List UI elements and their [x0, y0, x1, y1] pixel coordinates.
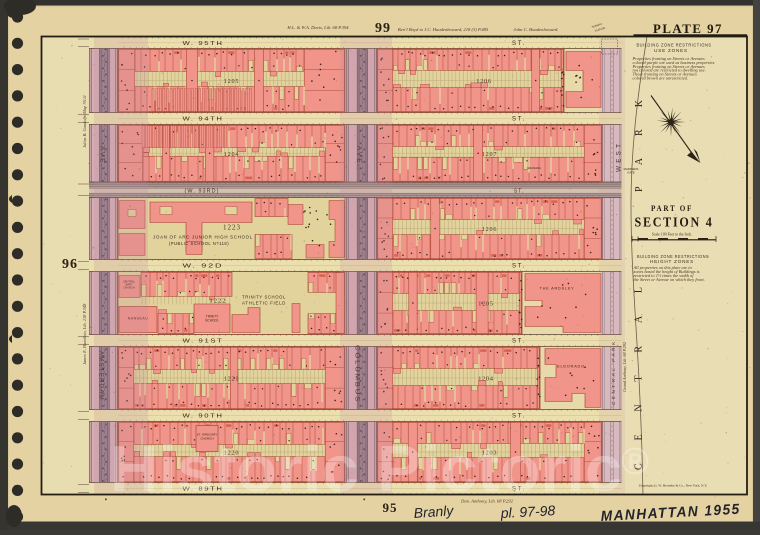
svg-text:GRANADA: GRANADA	[527, 166, 541, 170]
svg-text:the Street or Avenue on which: the Street or Avenue on which they front…	[634, 277, 705, 282]
svg-text:1207: 1207	[482, 151, 498, 158]
svg-text:96: 96	[62, 257, 78, 272]
svg-text:W. 94TH: W. 94TH	[183, 117, 224, 123]
svg-text:ST.: ST.	[512, 117, 526, 123]
svg-text:TRINITY SCHOOL: TRINITY SCHOOL	[242, 295, 286, 300]
svg-text:1223: 1223	[223, 224, 241, 232]
svg-text:1206: 1206	[482, 226, 498, 233]
svg-text:ST.: ST.	[512, 339, 526, 345]
svg-text:SCHOOL: SCHOOL	[205, 319, 219, 323]
svg-text:1204: 1204	[478, 376, 494, 383]
svg-text:USE ZONES: USE ZONES	[654, 48, 688, 53]
svg-text:ATHLETIC FIELD: ATHLETIC FIELD	[242, 301, 286, 306]
svg-text:W. 92D: W. 92D	[183, 264, 224, 270]
svg-text:(W. 93RD): (W. 93RD)	[185, 188, 220, 194]
svg-text:John C. Haudenhoward.: John C. Haudenhoward.	[514, 27, 559, 32]
svg-text:THE ARDSLEY: THE ARDSLEY	[540, 287, 575, 291]
svg-text:PART OF: PART OF	[651, 203, 693, 213]
svg-text:BUILDING ZONE RESTRICTIONS: BUILDING ZONE RESTRICTIONS	[637, 43, 712, 48]
svg-text:SECTION 4: SECTION 4	[635, 216, 714, 231]
svg-text:W. 91ST: W. 91ST	[183, 339, 224, 345]
svg-text:ST.: ST.	[512, 414, 526, 420]
svg-text:colored brown are unrestricted: colored brown are unrestricted.	[633, 76, 688, 81]
svg-text:JOAN OF ARC JUNIOR HIGH SCHOOL: JOAN OF ARC JUNIOR HIGH SCHOOL	[153, 235, 253, 240]
svg-text:Scale 100 Feet to the Inch.: Scale 100 Feet to the Inch.	[652, 233, 693, 237]
svg-text:ST.: ST.	[514, 188, 524, 194]
svg-text:ELDORADO: ELDORADO	[557, 365, 585, 369]
svg-text:1204: 1204	[224, 151, 240, 158]
svg-text:99: 99	[375, 21, 391, 36]
svg-text:1221: 1221	[224, 376, 240, 383]
svg-text:W. 90TH: W. 90TH	[183, 414, 224, 420]
svg-text:PLATE 97: PLATE 97	[653, 22, 723, 36]
svg-text:pl. 97-98: pl. 97-98	[499, 502, 555, 521]
svg-text:(PUBLIC SCHOOL N?118): (PUBLIC SCHOOL N?118)	[169, 241, 229, 246]
svg-text:1206: 1206	[476, 78, 492, 85]
svg-text:Branly: Branly	[413, 502, 455, 521]
svg-text:®: ®	[621, 441, 649, 483]
svg-text:1205: 1205	[478, 301, 494, 308]
svg-text:1205: 1205	[224, 78, 240, 85]
svg-text:Historic Pictoric: Historic Pictoric	[110, 432, 622, 505]
svg-text:GATE: GATE	[627, 171, 635, 175]
svg-text:Julius B. Gandolfo Map 76/11: Julius B. Gandolfo Map 76/11	[82, 95, 87, 148]
svg-text:ST.: ST.	[512, 41, 526, 47]
svg-text:W. 95TH: W. 95TH	[183, 41, 224, 47]
svg-text:ST.: ST.	[512, 264, 526, 270]
svg-text:1222: 1222	[210, 298, 227, 305]
